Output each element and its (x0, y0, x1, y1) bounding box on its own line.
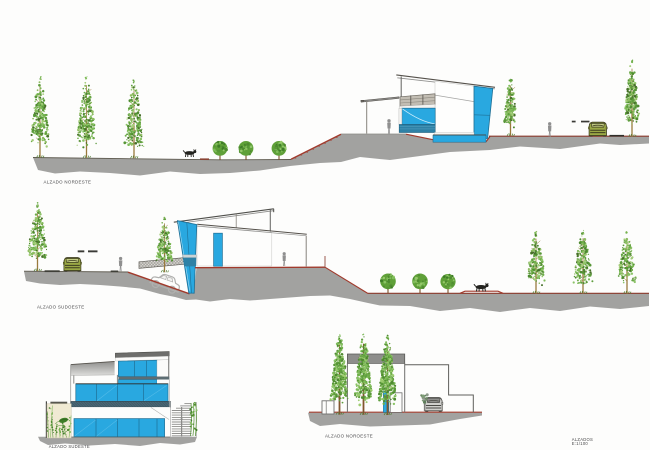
svg-text:ALZADO SUDESTE: ALZADO SUDESTE (49, 444, 90, 449)
svg-text:ALZADO SUDOESTE: ALZADO SUDOESTE (37, 304, 84, 309)
svg-text:E:1/100: E:1/100 (572, 441, 589, 446)
svg-text:ALZADO NORDESTE: ALZADO NORDESTE (44, 179, 92, 184)
svg-text:ALZADO NOROESTE: ALZADO NOROESTE (325, 433, 373, 438)
